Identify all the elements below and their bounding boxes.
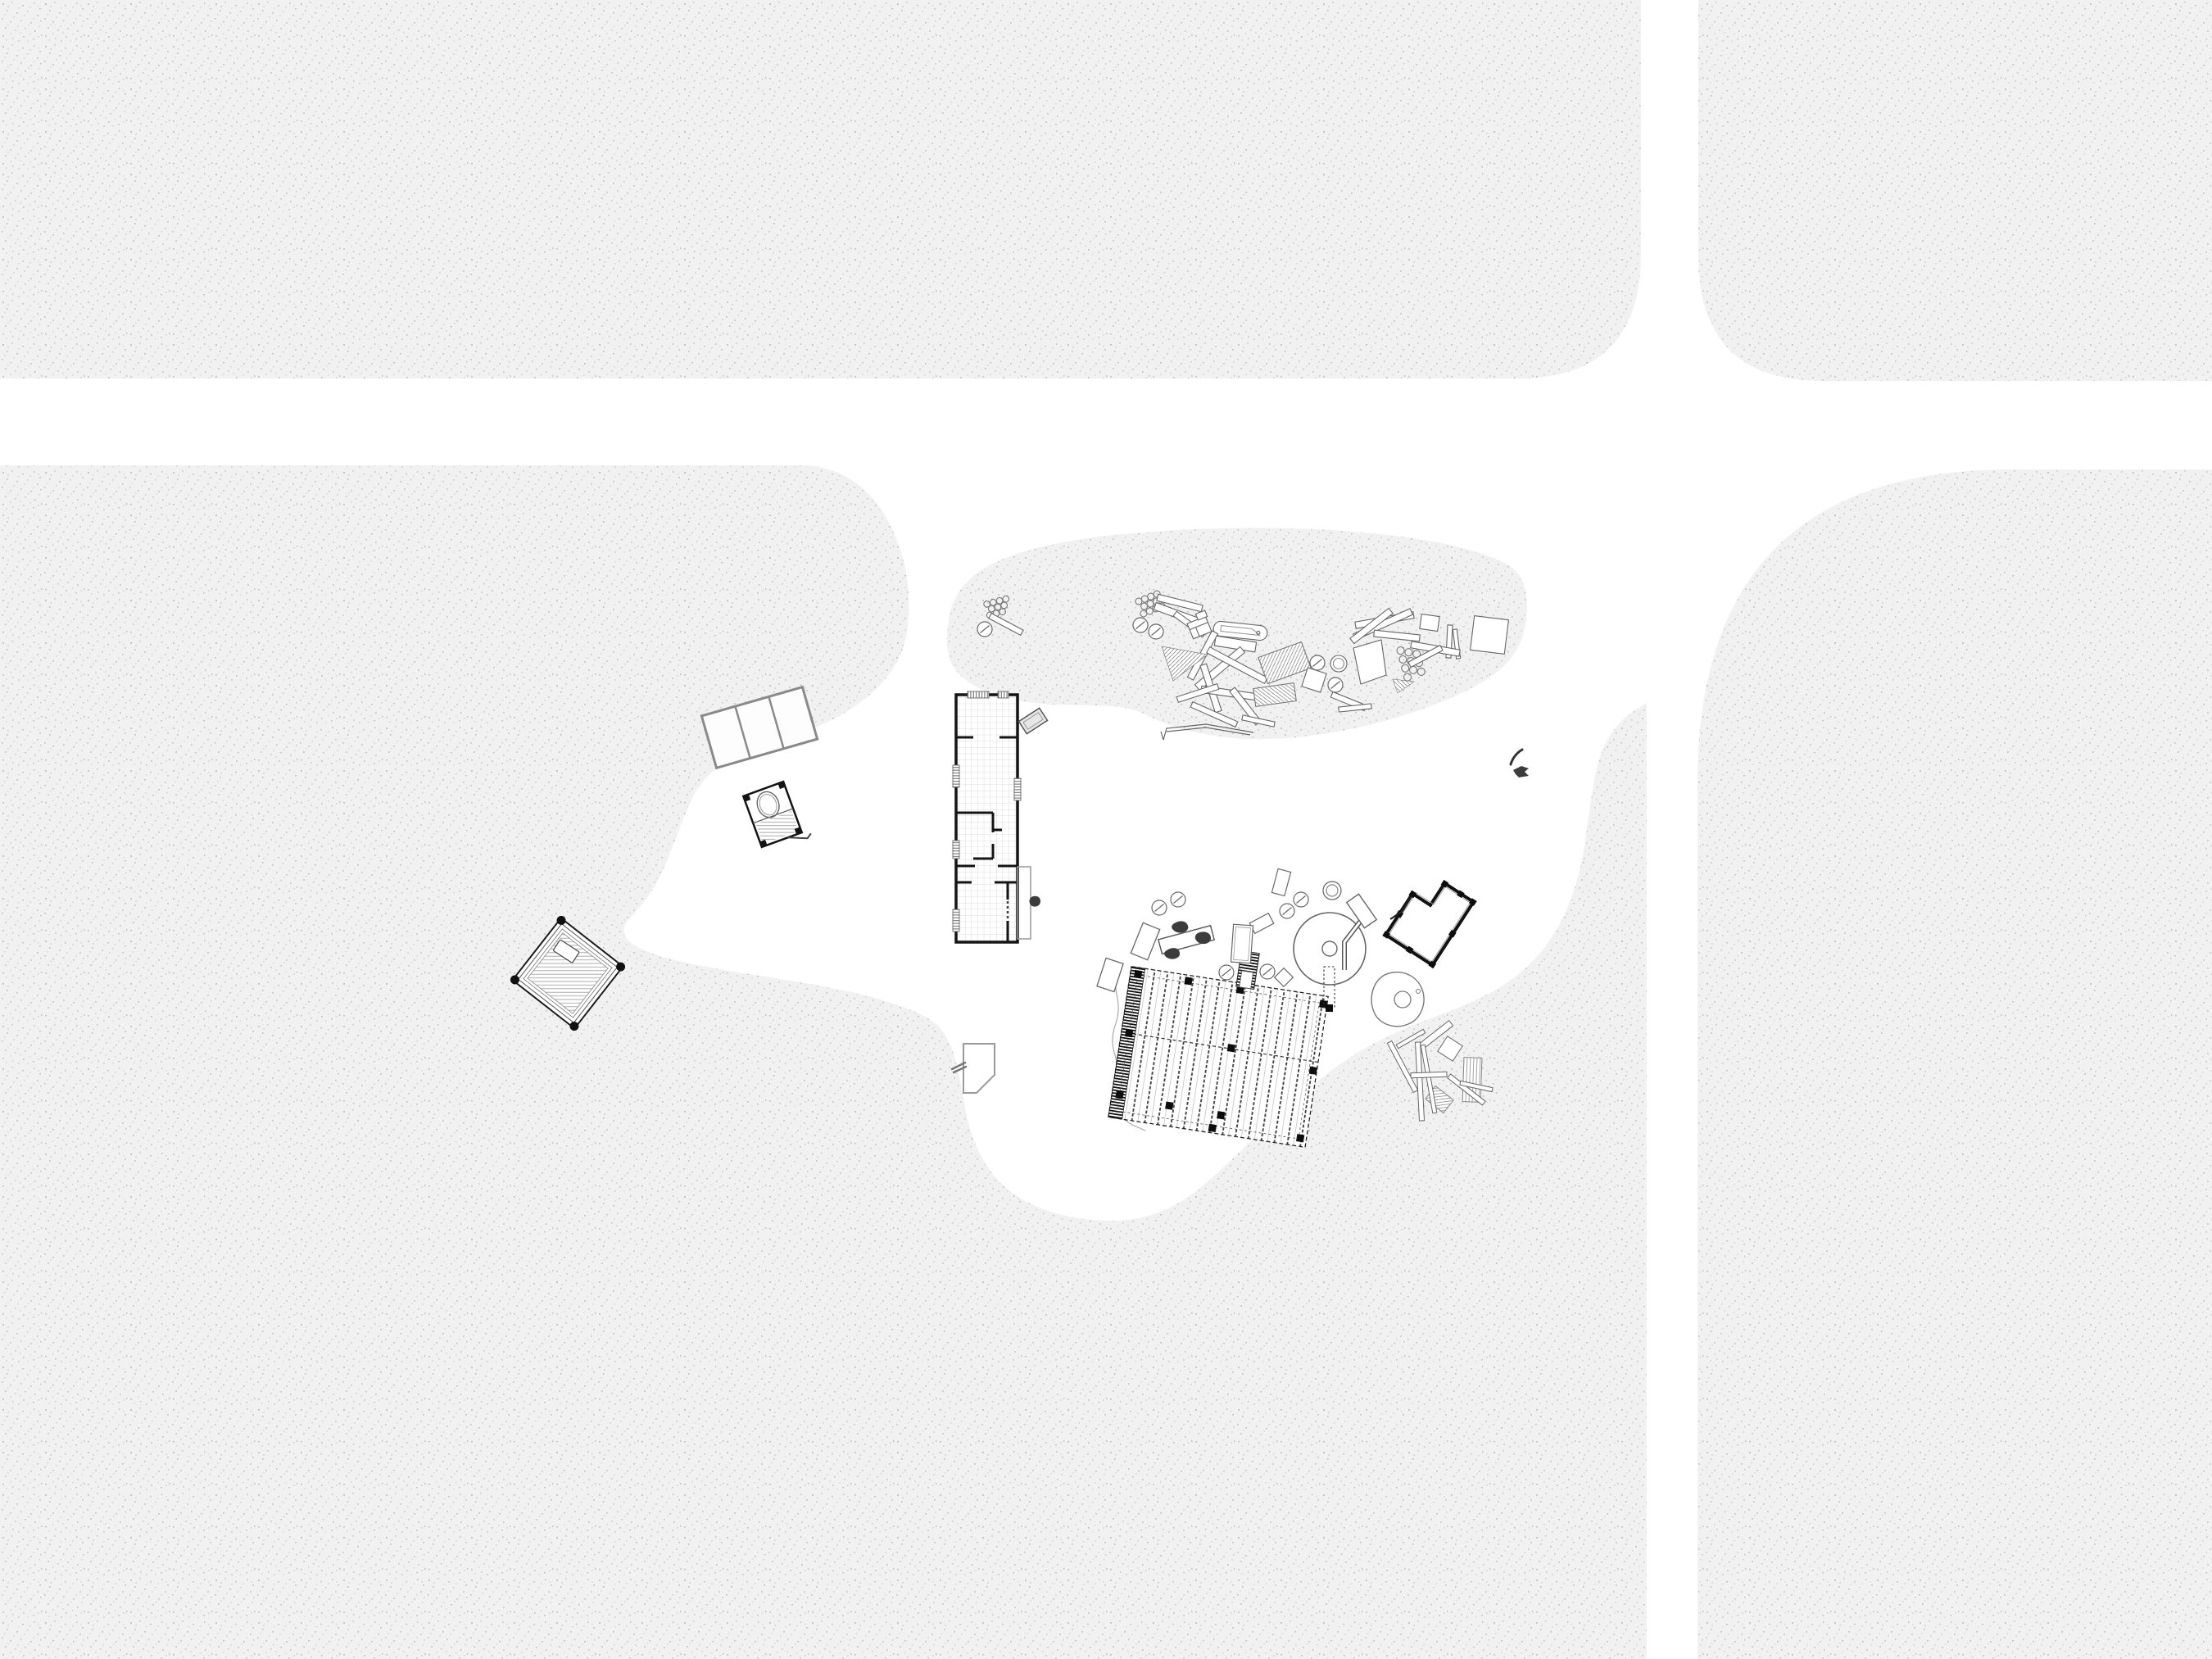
vegetation-block-top-right <box>1698 0 2212 381</box>
boulder <box>1371 972 1424 1027</box>
window <box>998 691 1009 698</box>
vegetation-block-top-left <box>0 0 1641 378</box>
window <box>953 841 959 859</box>
window <box>953 909 959 931</box>
cabin-floorplan <box>953 691 1021 942</box>
vegetation-block-right <box>1698 469 2212 1659</box>
site-plan-canvas[interactable] <box>0 0 2212 1659</box>
window <box>968 691 989 698</box>
deck-framing-plan <box>1108 967 1328 1148</box>
figure-by-porch <box>1029 896 1040 907</box>
window <box>1014 778 1021 800</box>
window <box>953 765 959 787</box>
